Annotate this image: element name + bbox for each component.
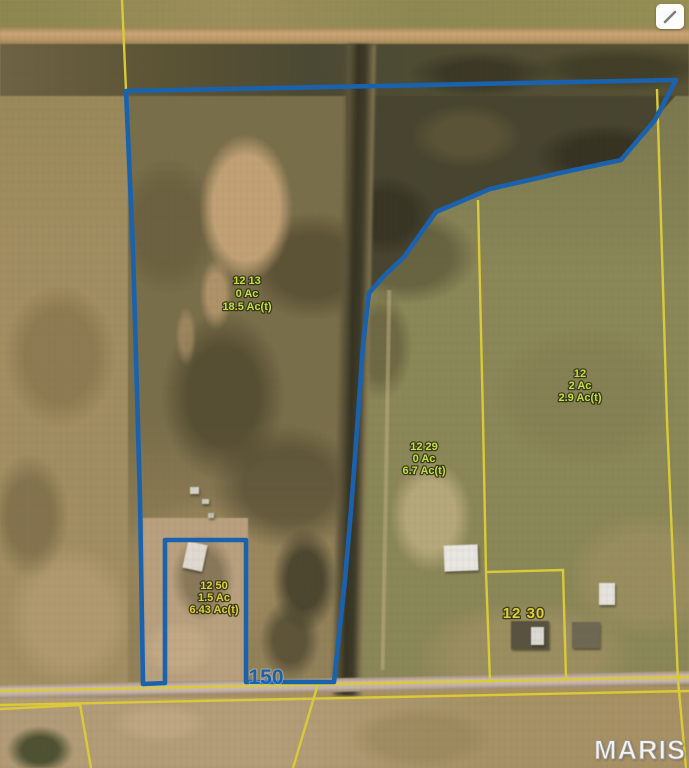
parcel-label-line: 1.5 Ac [198,592,230,604]
parcel-label-line: 12 29 [410,441,438,453]
parcel-label-line: 12 50 [200,580,228,592]
parcel-line-below-road-diagonal [293,684,318,768]
parcel-label-line: 2 Ac [569,380,592,392]
parcel-label-12: 12 2 Ac 2.9 Ac(t) [559,368,602,404]
parcel-line-center-yellow [478,200,490,681]
parcel-label-12-30: 12 30 [503,605,546,622]
aerial-parcel-map: 12 13 0 Ac 18.5 Ac(t) 12 29 0 Ac 6.7 Ac(… [0,0,689,768]
map-tool-button[interactable] [656,4,684,29]
road-edge-line-upper [0,677,689,691]
parcel-label-12-29: 12 29 0 Ac 6.7 Ac(t) [403,441,446,477]
parcel-label-line: 6.7 Ac(t) [403,465,446,477]
parcel-label-line: 12 30 [503,605,546,622]
parcel-label-line: 6.43 Ac(t) [189,604,238,616]
parcel-label-line: 12 [574,368,586,380]
pen-stroke [665,12,675,22]
parcel-label-line: 0 Ac [236,288,259,300]
road-edge-line-lower [0,691,689,705]
parcel-label-line: 2.9 Ac(t) [559,392,602,404]
parcel-label-12-50: 12 50 1.5 Ac 6.43 Ac(t) [189,580,238,616]
boundary-overlay-svg: 12 13 0 Ac 18.5 Ac(t) 12 29 0 Ac 6.7 Ac(… [0,0,689,768]
parcel-line-east-yellow [657,89,686,768]
parcel-label-12-13: 12 13 0 Ac 18.5 Ac(t) [222,275,271,313]
parcel-label-line: 0 Ac [413,453,436,465]
parcel-label-line: 18.5 Ac(t) [222,301,271,313]
parcel-line-1230-lot-yellow [486,570,566,678]
parcel-label-line: 12 13 [233,275,261,287]
maris-watermark: MARIS [594,735,686,766]
parcel-line-topleft-yellow [122,0,126,90]
diagonal-pen-icon [660,8,680,26]
road-150-label: 150 [248,666,283,689]
parcel-line-below-road-left [0,704,91,768]
